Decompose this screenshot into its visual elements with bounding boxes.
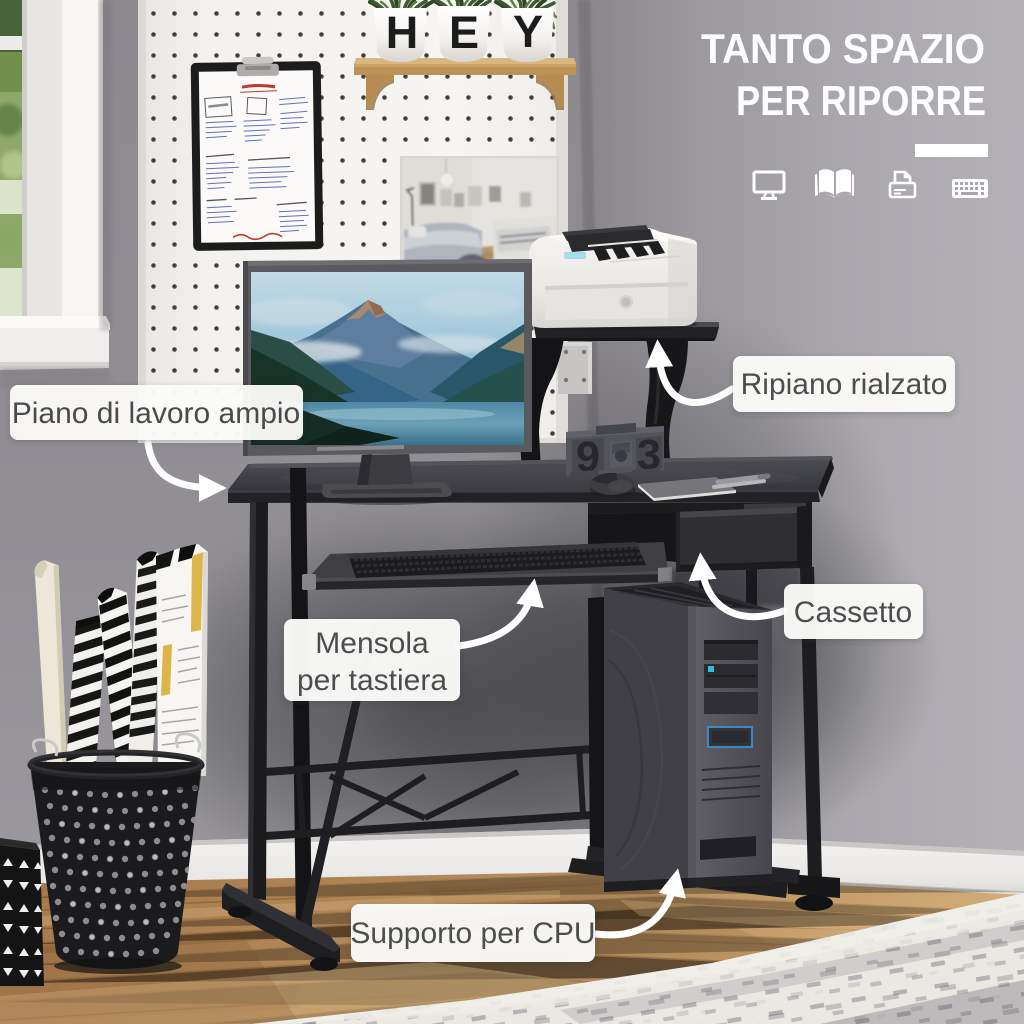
svg-text:Mensola: Mensola bbox=[315, 627, 429, 660]
svg-text:per tastiera: per tastiera bbox=[297, 664, 447, 697]
svg-text:PER RIPORRE: PER RIPORRE bbox=[736, 77, 986, 124]
svg-text:TANTO SPAZIO: TANTO SPAZIO bbox=[701, 25, 985, 72]
svg-text:Cassetto: Cassetto bbox=[794, 596, 912, 629]
svg-text:H: H bbox=[386, 7, 419, 58]
svg-text:Y: Y bbox=[513, 6, 543, 57]
svg-text:Supporto per CPU: Supporto per CPU bbox=[350, 917, 595, 950]
svg-text:Ripiano rialzato: Ripiano rialzato bbox=[741, 368, 948, 401]
svg-text:E: E bbox=[449, 7, 479, 58]
svg-text:Piano di lavoro ampio: Piano di lavoro ampio bbox=[12, 397, 301, 430]
